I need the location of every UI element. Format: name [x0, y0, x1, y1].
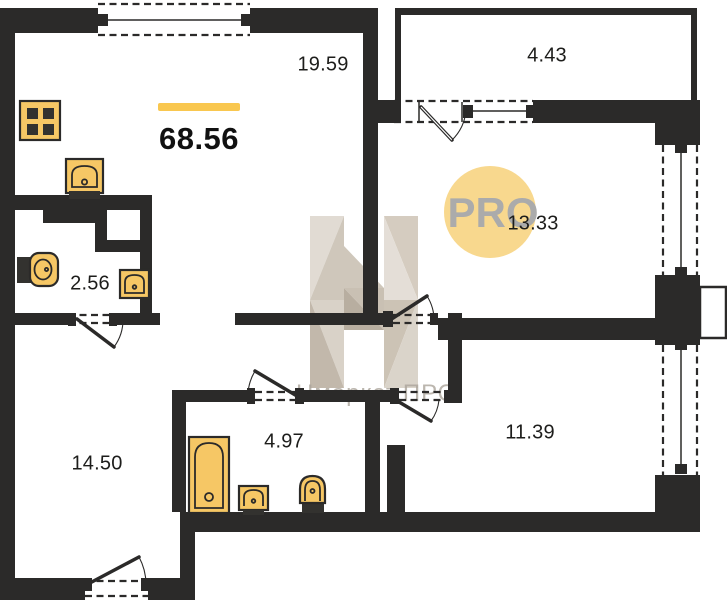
- window-right-upper: [663, 143, 697, 277]
- door-balcony: [421, 107, 466, 140]
- bathroom-toilet-icon: [300, 476, 325, 513]
- room-area-label-bedroom-lower: 11.39: [505, 422, 555, 445]
- door-bathroom: [248, 371, 297, 400]
- room-area-label-bathroom: 4.97: [264, 431, 304, 454]
- room-area-label-bedroom-upper: 13.33: [507, 213, 558, 236]
- wc-toilet-icon: [17, 253, 58, 286]
- window-right-lower: [663, 340, 697, 475]
- total-area-accent-bar: [158, 103, 240, 111]
- exterior-ledge: [700, 287, 726, 338]
- door-entrance: [85, 557, 148, 596]
- floor-plan: Нмаркет.ПРО PRO: [0, 0, 727, 600]
- room-area-label-hall-room: 14.50: [71, 453, 122, 476]
- window-top: [98, 4, 251, 35]
- wc-sink-icon: [120, 270, 149, 298]
- room-area-label-wc: 2.56: [70, 273, 110, 296]
- room-area-label-kitchen-living: 19.59: [297, 54, 348, 77]
- floor-plan-drawing: Нмаркет.ПРО PRO: [0, 0, 727, 600]
- kitchen-sink-icon: [66, 159, 103, 199]
- room-area-label-balcony: 4.43: [527, 45, 567, 68]
- bathtub-icon: [189, 437, 229, 513]
- bathroom-sink-icon: [239, 486, 268, 515]
- stove-icon: [20, 101, 60, 140]
- total-area-value: 68.56: [159, 121, 239, 157]
